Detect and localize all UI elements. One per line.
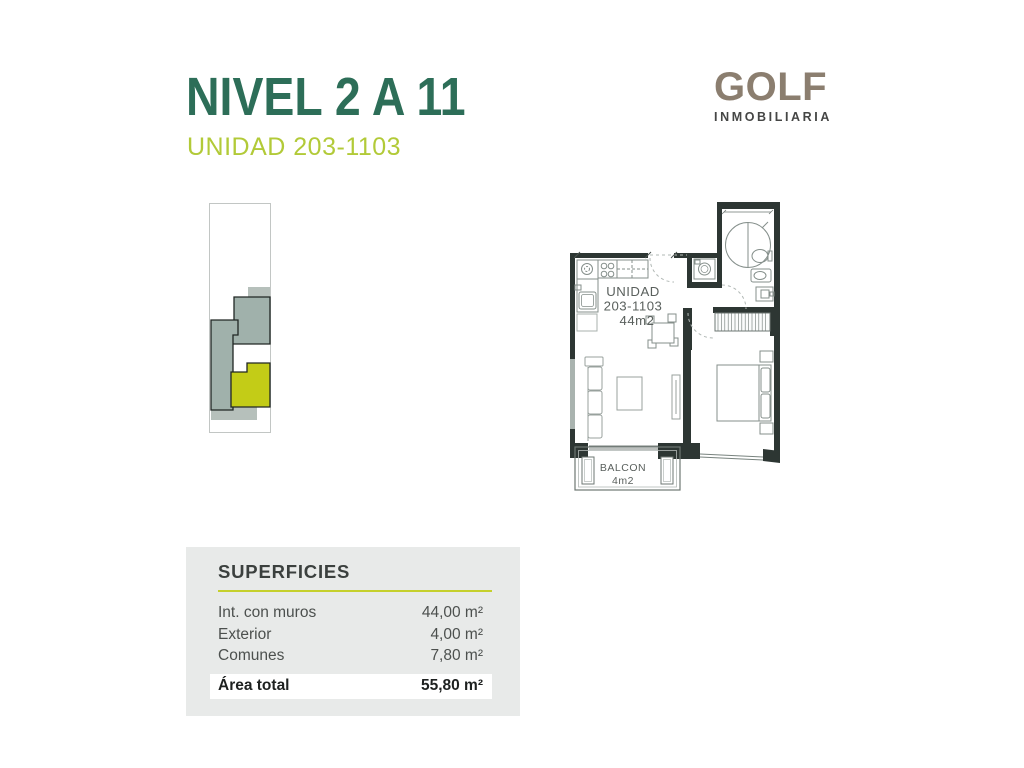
plan-labels: UNIDAD 203-1103 44m2 BALCON 4m2 [600, 284, 662, 487]
superficies-heading: SUPERFICIES [218, 561, 483, 583]
bed-icon [717, 365, 771, 421]
row-label: Int. con muros [218, 602, 316, 624]
page-subtitle: UNIDAD 203-1103 [187, 133, 401, 162]
coffee-table-icon [617, 377, 642, 410]
bathroom-fixtures [722, 210, 774, 301]
sofa-icon [585, 357, 603, 441]
living-window [570, 359, 575, 429]
entry-door-arc [650, 258, 674, 282]
row-value: 44,00 m² [422, 602, 483, 624]
balcony-label-line1: BALCON [600, 462, 646, 474]
tv-unit-icon [672, 375, 680, 419]
brand-tagline: INMOBILIARIA [714, 110, 832, 124]
row-value: 4,00 m² [430, 624, 483, 646]
stove-icon [601, 263, 607, 269]
key-plan-icon [209, 203, 271, 433]
nightstand-icon [760, 423, 773, 434]
range-hood-icon [577, 260, 598, 279]
toilet-icon [752, 250, 768, 263]
superficies-rows: Int. con muros 44,00 m² Exterior 4,00 m²… [218, 602, 483, 667]
page: NIVEL 2 A 11 UNIDAD 203-1103 GOLF INMOBI… [0, 0, 1024, 768]
wardrobe-icon [715, 313, 770, 331]
washer-icon [694, 259, 715, 279]
building-key-plan [209, 203, 271, 438]
floor-plan-drawing: UNIDAD 203-1103 44m2 BALCON 4m2 [565, 197, 785, 497]
balcony-label-line2: 4m2 [612, 475, 634, 487]
dimension-line [722, 210, 773, 214]
total-row: Área total 55,80 m² [210, 674, 492, 699]
row-label: Comunes [218, 645, 284, 667]
table-row: Exterior 4,00 m² [218, 624, 483, 646]
page-title: NIVEL 2 A 11 [186, 70, 466, 124]
unit-label-line2: 203-1103 [604, 299, 663, 314]
unit-label-line3: 44m2 [620, 313, 655, 328]
unit-label-line1: UNIDAD [606, 284, 660, 299]
table-row: Comunes 7,80 m² [218, 645, 483, 667]
accent-rule [218, 590, 492, 592]
superficies-panel: SUPERFICIES Int. con muros 44,00 m² Exte… [186, 547, 520, 716]
row-value: 7,80 m² [430, 645, 483, 667]
row-label: Exterior [218, 624, 271, 646]
bathroom-door-arc [722, 285, 746, 309]
total-value: 55,80 m² [421, 676, 483, 696]
apartment-floor-plan: UNIDAD 203-1103 44m2 BALCON 4m2 [565, 197, 785, 502]
brand-name: GOLF [714, 67, 832, 107]
total-label: Área total [218, 676, 290, 696]
table-row: Int. con muros 44,00 m² [218, 602, 483, 624]
brand-logo: GOLF INMOBILIARIA [714, 67, 832, 124]
nightstand-icon [760, 351, 773, 362]
